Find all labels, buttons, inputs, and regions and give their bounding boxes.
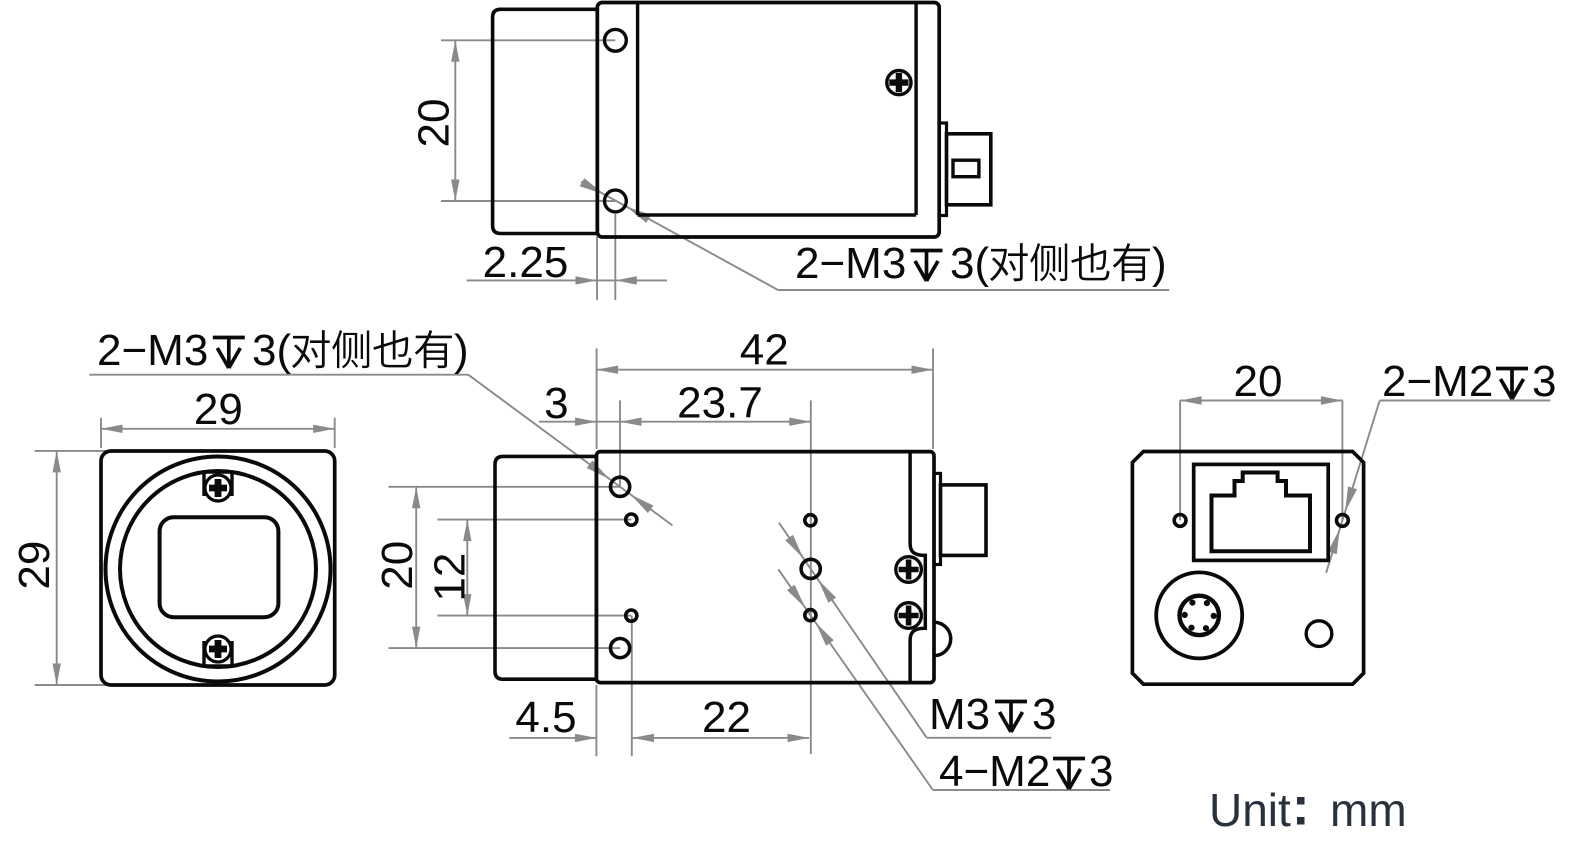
svg-text:20: 20	[1234, 357, 1283, 406]
svg-text:23.7: 23.7	[677, 379, 763, 428]
svg-text:4.5: 4.5	[515, 693, 576, 742]
svg-text:3(: 3(	[950, 239, 989, 288]
svg-text:): )	[454, 326, 469, 375]
svg-text:3: 3	[544, 379, 568, 428]
svg-text:Unit: Unit	[1209, 784, 1291, 836]
svg-text:42: 42	[740, 326, 789, 375]
svg-text:4−M2: 4−M2	[939, 747, 1050, 796]
svg-text:M3: M3	[929, 690, 990, 739]
svg-text:29: 29	[194, 385, 243, 434]
svg-text:29: 29	[10, 541, 59, 590]
svg-text:3(: 3(	[252, 326, 291, 375]
svg-text:2−M3: 2−M3	[97, 326, 208, 375]
svg-text:12: 12	[426, 553, 475, 602]
svg-text:3: 3	[1032, 690, 1056, 739]
svg-text:3: 3	[1089, 747, 1113, 796]
svg-text:2−M2: 2−M2	[1382, 357, 1493, 406]
svg-text:2−M3: 2−M3	[795, 239, 906, 288]
svg-text:20: 20	[410, 99, 459, 148]
svg-text:2.25: 2.25	[483, 238, 569, 287]
svg-text:): )	[1152, 239, 1167, 288]
svg-text:3: 3	[1532, 357, 1556, 406]
svg-text:mm: mm	[1330, 784, 1407, 836]
svg-text:20: 20	[373, 541, 422, 590]
svg-text:22: 22	[702, 693, 751, 742]
